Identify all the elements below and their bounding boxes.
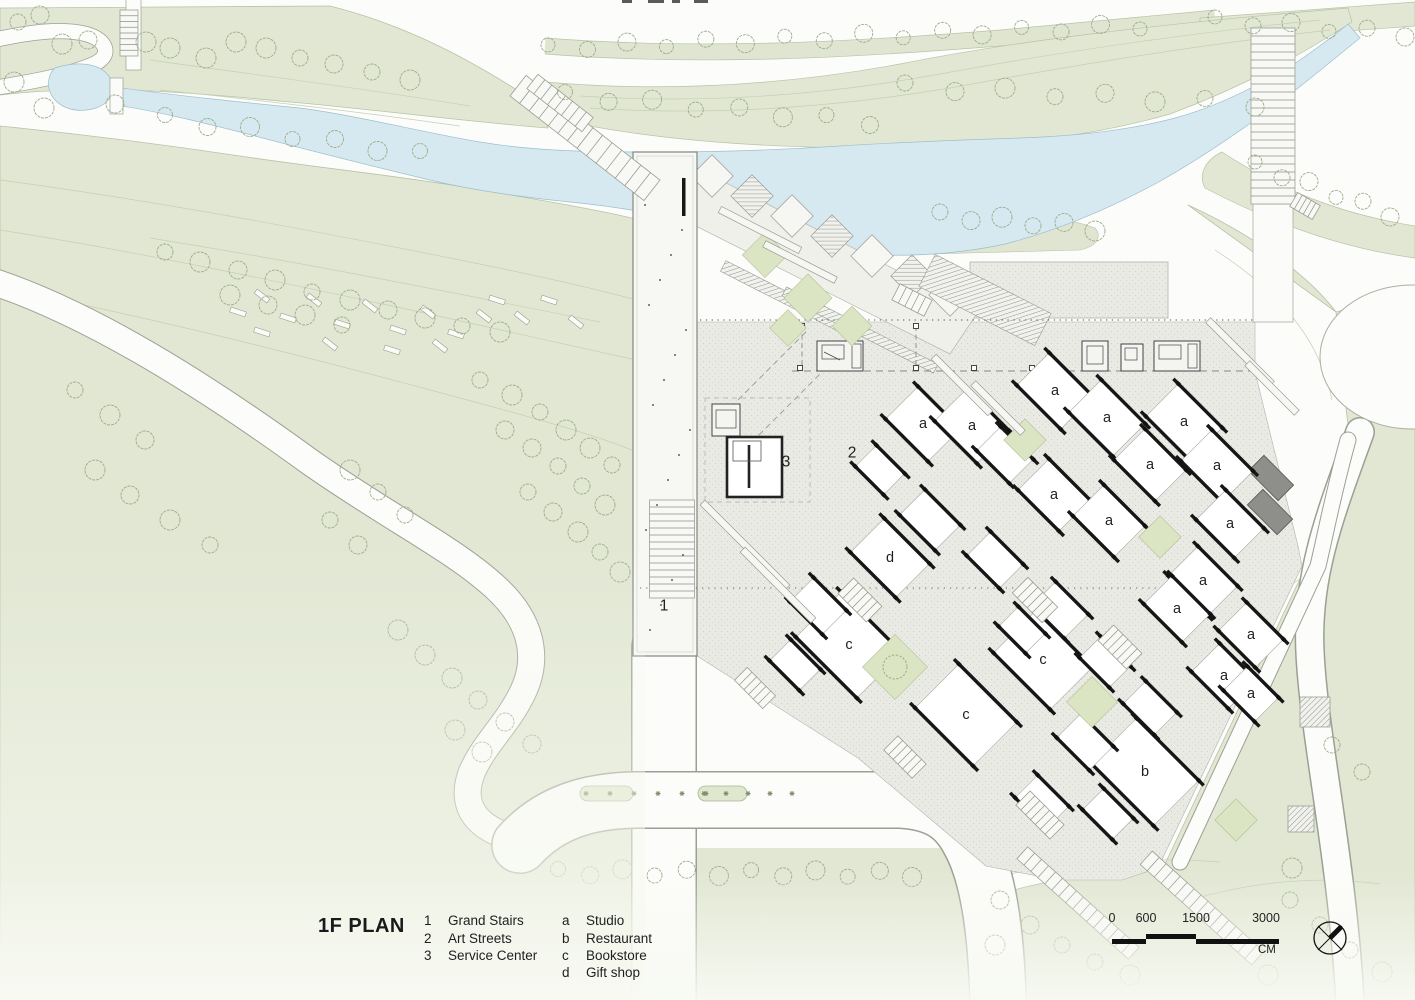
plan-label: a: [1103, 410, 1112, 426]
plan-label: a: [1247, 627, 1256, 643]
plan-label: a: [919, 416, 928, 432]
legend-key: a: [562, 913, 578, 928]
legend-letters: aStudio bRestaurant cBookstore dGift sho…: [562, 912, 652, 982]
paving-dot: [659, 279, 661, 281]
plan-label: c: [1039, 652, 1046, 668]
legend-label: Service Center: [448, 948, 537, 963]
legend-key: b: [562, 931, 578, 946]
plan-label: a: [1180, 414, 1189, 430]
weir-bridge: [110, 78, 123, 114]
site-plan-page: 123daaaaaaaaaaaaaaacccb 1F PLAN 1Grand S…: [0, 0, 1415, 1000]
flower-bed: [1300, 697, 1330, 727]
bottom-fade: [0, 870, 1415, 1000]
scale-segment: [1112, 939, 1146, 944]
legend-item: aStudio: [562, 912, 652, 929]
legend-key: 2: [424, 931, 440, 946]
paving-dot: [685, 329, 687, 331]
legend-label: Grand Stairs: [448, 913, 524, 928]
service-center: [727, 437, 782, 497]
scale-tick: 600: [1136, 911, 1157, 925]
shrub-icon: [746, 791, 751, 796]
stairs: [650, 500, 695, 598]
legend-label: Restaurant: [586, 931, 652, 946]
legend-numbers: 1Grand Stairs 2Art Streets 3Service Cent…: [424, 912, 537, 964]
shrub-icon: [702, 791, 707, 796]
paving-dot: [645, 529, 647, 531]
north-arrow-icon: [1310, 918, 1350, 958]
bridge-landing: [1253, 204, 1293, 322]
stairs: [1251, 28, 1295, 204]
legend-key: 3: [424, 948, 440, 963]
paving-dot: [682, 554, 684, 556]
paving-dot: [674, 354, 676, 356]
paving-dot: [671, 579, 673, 581]
plan-label: a: [1220, 668, 1229, 684]
legend-item: 1Grand Stairs: [424, 912, 537, 929]
scale-unit: CM: [1258, 944, 1276, 956]
plan-label: c: [962, 707, 969, 723]
shrub-icon: [656, 791, 661, 796]
scale-segment: [1196, 939, 1279, 944]
plan-label: a: [1051, 383, 1060, 399]
plan-label: a: [1105, 513, 1114, 529]
paving-dot: [681, 229, 683, 231]
paving-dot: [670, 254, 672, 256]
scale-tick: 3000: [1252, 911, 1280, 925]
legend-label: Art Streets: [448, 931, 512, 946]
plan-label: 2: [848, 445, 857, 462]
plan-label: a: [1050, 487, 1059, 503]
scale-tick: 1500: [1182, 911, 1210, 925]
page-title: 1F PLAN: [318, 915, 405, 938]
plan-label: 1: [660, 598, 669, 615]
plan-label: d: [886, 550, 894, 566]
legend-label: Gift shop: [586, 965, 640, 980]
paving-dot: [689, 429, 691, 431]
shrub-icon: [680, 791, 685, 796]
plan-label: a: [1226, 516, 1235, 532]
paving-dot: [652, 404, 654, 406]
scale-segment: [1146, 934, 1196, 939]
paving-dot: [678, 454, 680, 456]
paving-dot: [656, 504, 658, 506]
legend-label: Bookstore: [586, 948, 647, 963]
flower-bed: [1288, 806, 1314, 832]
plan-label: a: [1247, 686, 1256, 702]
shrub-icon: [724, 791, 729, 796]
shrub-icon: [790, 791, 795, 796]
plan-label: b: [1141, 764, 1149, 780]
paving-dot: [644, 204, 646, 206]
legend-key: 1: [424, 913, 440, 928]
paving-dot: [649, 629, 651, 631]
legend-item: cBookstore: [562, 947, 652, 964]
plan-label: 3: [782, 454, 791, 471]
stairs: [120, 10, 138, 56]
paving-dot: [648, 304, 650, 306]
legend-item: 2Art Streets: [424, 929, 537, 946]
plan-label: a: [1173, 601, 1182, 617]
scale-tick: 0: [1109, 911, 1116, 925]
paving-dot: [663, 379, 665, 381]
site-plan-drawing: 123daaaaaaaaaaaaaaacccb: [0, 0, 1415, 1000]
legend-key: d: [562, 965, 578, 980]
plan-label: a: [1199, 573, 1208, 589]
shrub-icon: [768, 791, 773, 796]
paving-dot: [667, 479, 669, 481]
legend-item: bRestaurant: [562, 929, 652, 946]
legend-label: Studio: [586, 913, 624, 928]
plan-label: a: [1146, 457, 1155, 473]
legend-item: 3Service Center: [424, 947, 537, 964]
legend-item: dGift shop: [562, 964, 652, 981]
plan-label: c: [845, 637, 852, 653]
legend-key: c: [562, 948, 578, 963]
plan-label: a: [968, 418, 977, 434]
plan-label: a: [1213, 458, 1222, 474]
